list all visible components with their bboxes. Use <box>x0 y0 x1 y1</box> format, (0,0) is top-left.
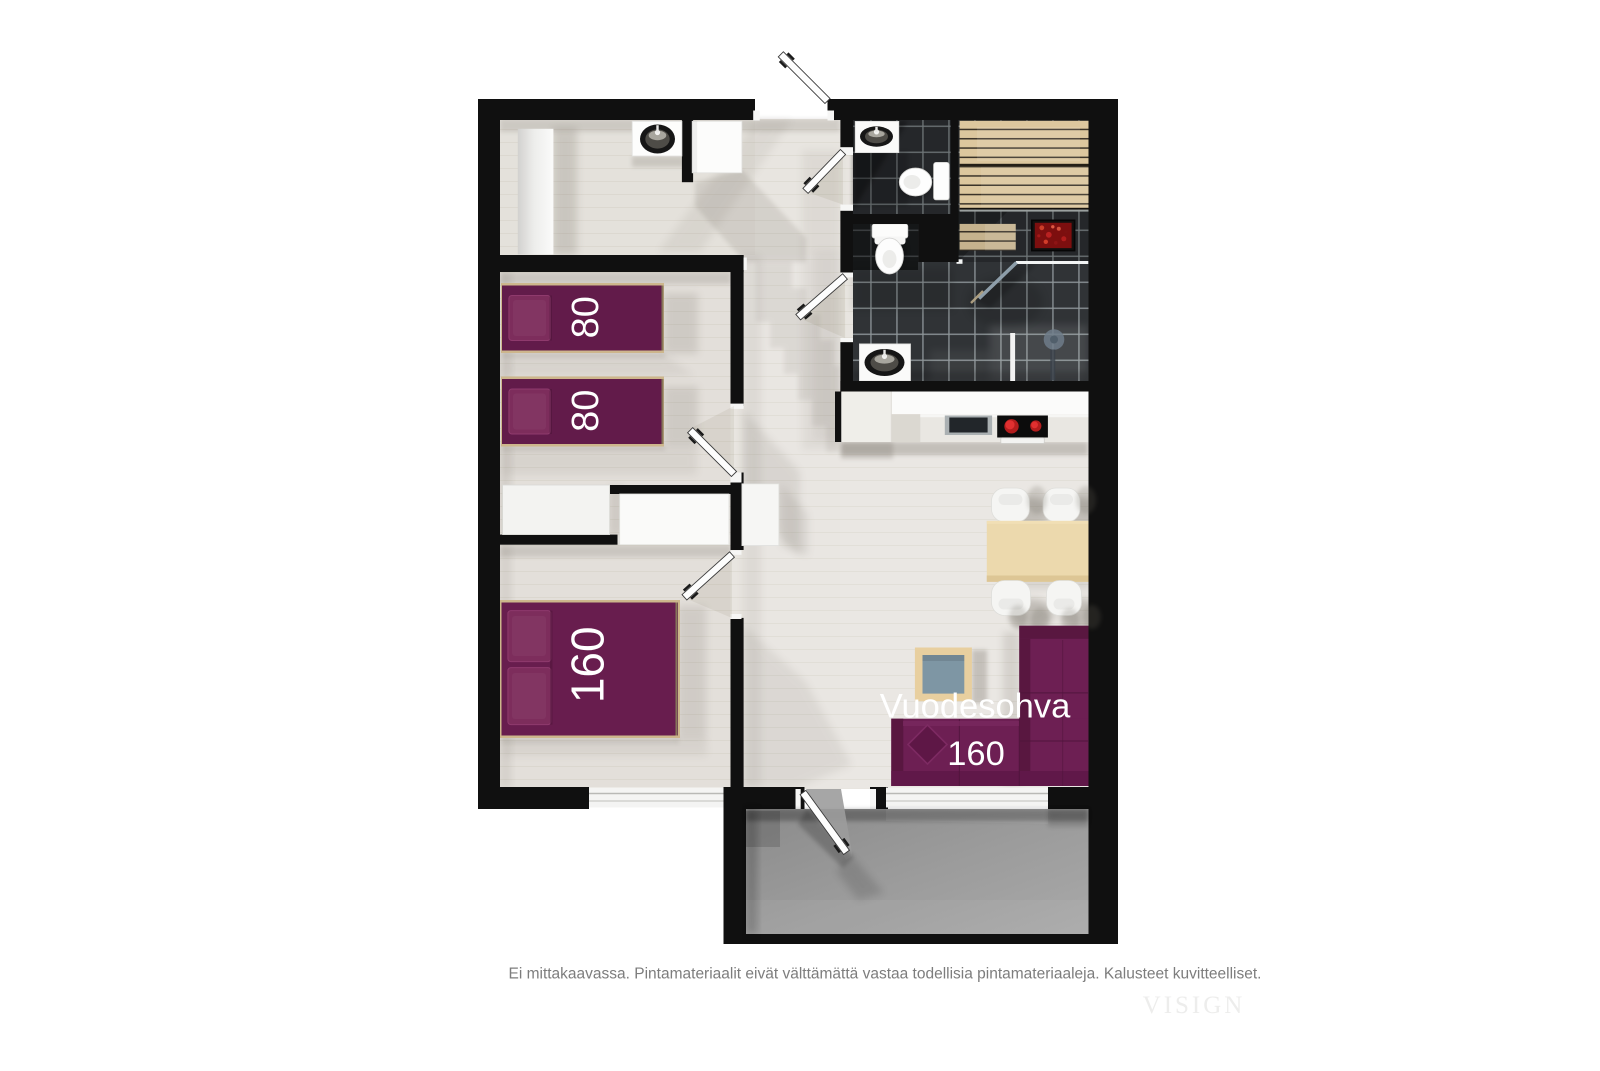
svg-text:80: 80 <box>565 390 607 432</box>
svg-text:VISIGN: VISIGN <box>1143 992 1246 1019</box>
svg-text:80: 80 <box>565 296 607 338</box>
svg-text:Ei mittakaavassa. Pintamateria: Ei mittakaavassa. Pintamateriaalit eivät… <box>509 966 1262 983</box>
svg-text:160: 160 <box>562 626 614 703</box>
svg-text:160: 160 <box>947 735 1005 773</box>
svg-text:Vuodesohva: Vuodesohva <box>880 688 1071 726</box>
